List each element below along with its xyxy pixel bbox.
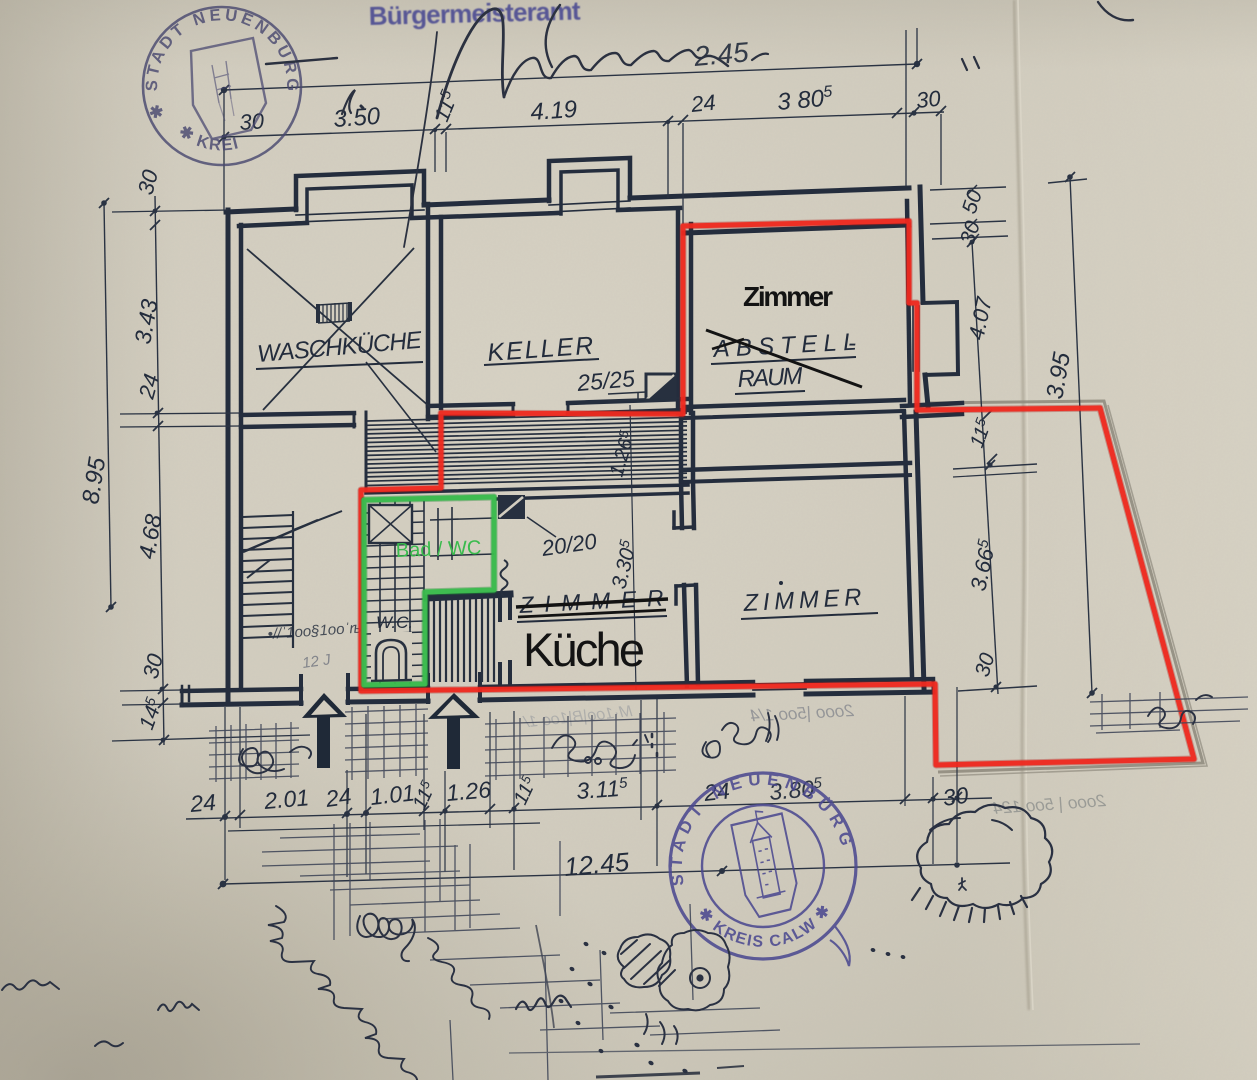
svg-text:24: 24 — [188, 789, 217, 817]
svg-text:Zimmer: Zimmer — [743, 281, 833, 312]
svg-text:RAUM: RAUM — [737, 363, 804, 393]
svg-text:2.45: 2.45 — [692, 36, 750, 72]
svg-text:30: 30 — [941, 782, 970, 811]
svg-text:Bad / WC: Bad / WC — [395, 537, 481, 562]
svg-text:25/25: 25/25 — [575, 365, 636, 396]
svg-text:12.45: 12.45 — [563, 846, 631, 882]
svg-text:30: 30 — [915, 85, 943, 113]
svg-text:-: - — [848, 330, 856, 357]
svg-text:1.26: 1.26 — [445, 776, 492, 806]
svg-text:Küche: Küche — [523, 623, 645, 676]
svg-text:3.50: 3.50 — [333, 103, 382, 133]
svg-text:24: 24 — [323, 783, 353, 812]
svg-text:1.01: 1.01 — [369, 779, 416, 810]
svg-text:2.01: 2.01 — [262, 784, 310, 814]
svg-text:24: 24 — [689, 90, 717, 118]
svg-text:W.C.: W.C. — [376, 613, 413, 632]
svg-text:4.19: 4.19 — [530, 96, 578, 126]
